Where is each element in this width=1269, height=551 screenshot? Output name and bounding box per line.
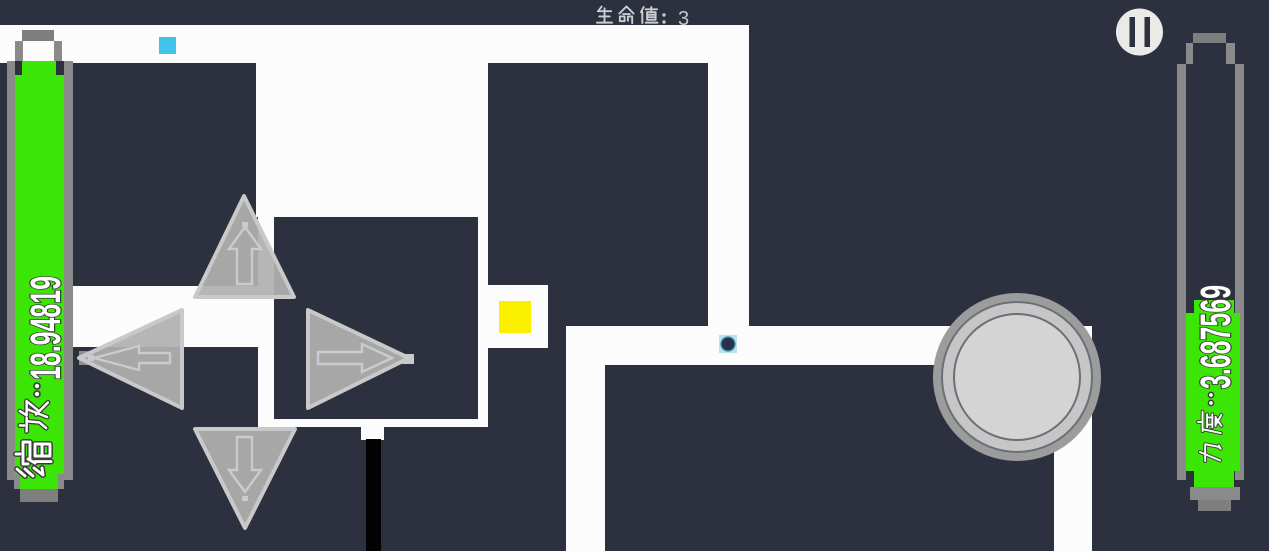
- svg-text:3.687569: 3.687569: [1192, 285, 1240, 389]
- svg-text:3: 3: [678, 8, 689, 30]
- svg-text:18.94819: 18.94819: [22, 276, 70, 380]
